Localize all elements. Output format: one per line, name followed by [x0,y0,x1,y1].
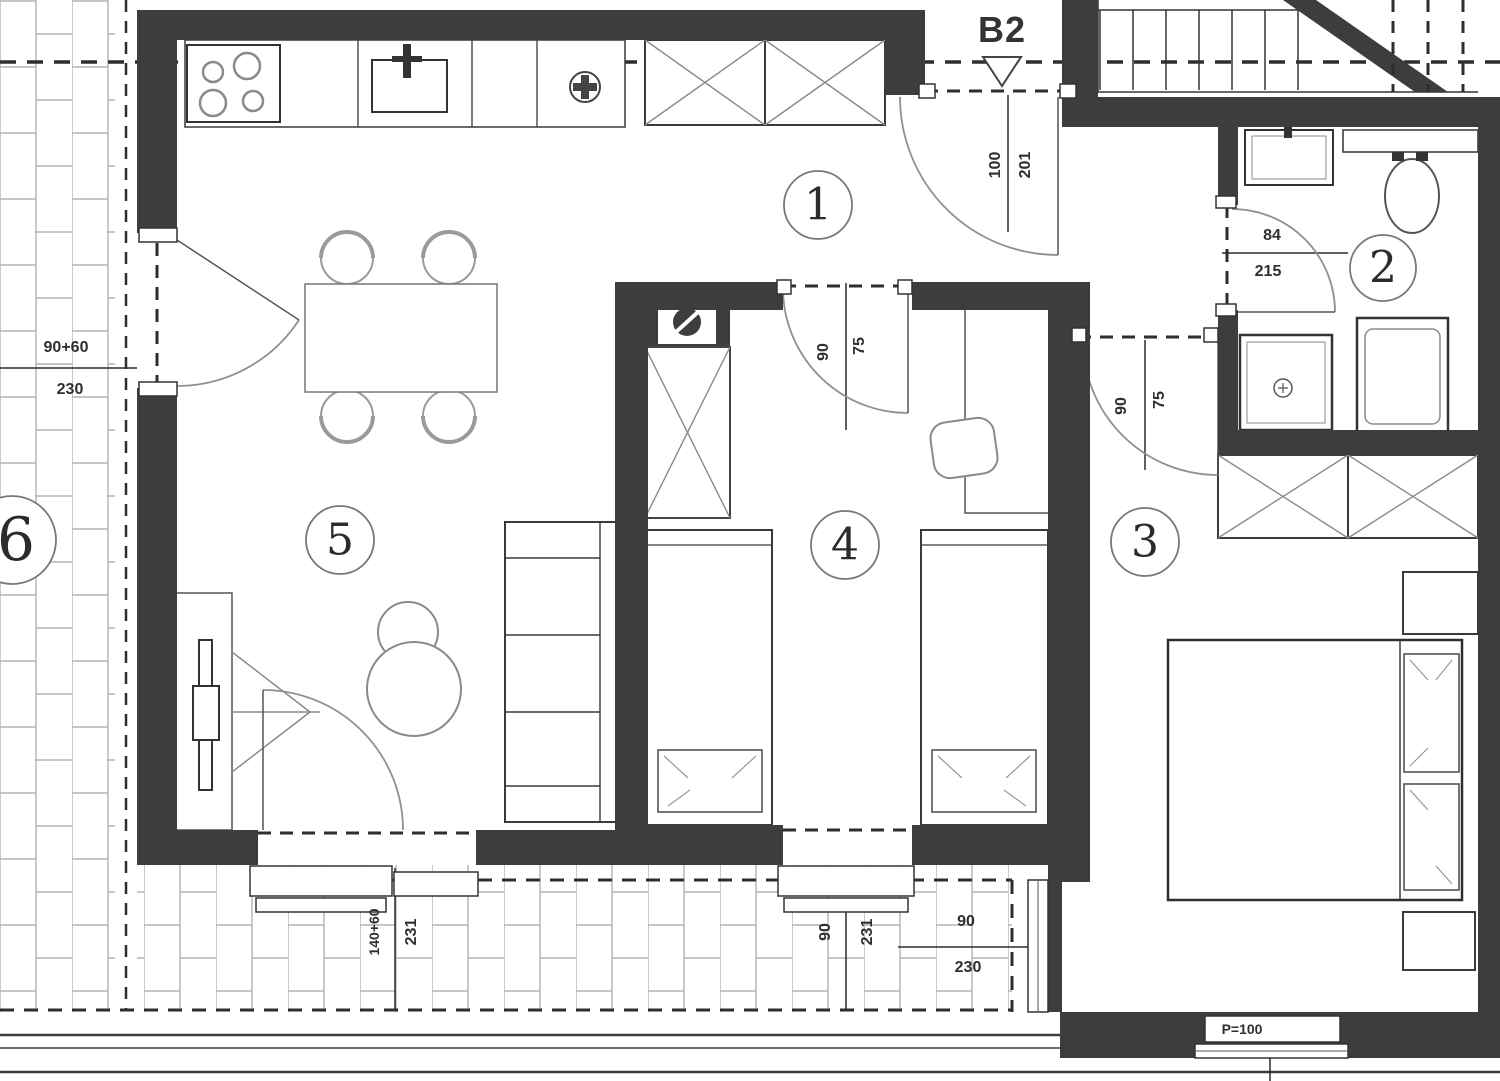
dim-bedroom4-door-width: 90 [815,343,833,361]
nightstand-bottom [1403,912,1475,970]
pillow [1404,654,1459,772]
room-number-1: 1 [804,180,832,231]
parapet-label: P=100 [1222,1021,1263,1037]
dim-bedroom4-door-height: 75 [851,337,869,355]
dim-side-window-height: 230 [57,381,84,399]
room-number-3: 3 [1131,517,1159,568]
kitchen-counter [185,40,625,127]
pillow [1404,784,1459,890]
living-side-door-arc [177,320,299,386]
bedroom3-wardrobe [1218,455,1478,538]
desk-chair [928,416,999,480]
staircase [1098,0,1478,92]
bedroom4-bed-left [645,530,772,825]
dining-set [305,232,497,442]
dim-entrance-width: 100 [987,152,1005,179]
armchair [367,602,461,736]
stair-direction-bar [1283,0,1448,92]
room-number-5: 5 [326,515,354,566]
dim-side-window-width: 90+60 [44,339,89,357]
dining-table [305,284,497,392]
bedroom4-bed-right [921,530,1048,825]
bathroom-sink [1245,122,1333,185]
dim-bedroom3-door-width: 90 [1113,397,1131,415]
dim-balcony-door-height: 231 [403,919,421,946]
hall-wardrobe [645,40,885,125]
washing-machine [1357,318,1448,432]
sofa [505,522,628,822]
dim-bedroom3-door-height: 75 [1151,391,1169,409]
floorplan-page: B2 1 2 3 4 5 6 100 201 90 75 90 75 84 21… [0,0,1500,1081]
room-number-4: 4 [831,520,859,571]
nightstand-top [1403,572,1478,634]
dim-bedroom4-window-height: 231 [859,919,877,946]
window-sill [250,866,392,896]
floorplan-drawing [0,0,1500,1081]
room-number-2: 2 [1369,243,1397,294]
entrance-marker-icon [983,57,1021,86]
bedroom3-bed [1168,640,1462,900]
boiler-icon [570,72,600,102]
bedroom4-wardrobe [645,347,730,518]
dim-balcony-door-width: 140+60 [366,908,382,955]
bedroom4-desk [928,300,1048,513]
shower [1240,335,1332,430]
dim-bathroom-door-height: 215 [1255,263,1282,281]
toilet [1385,152,1439,233]
dim-bedroom4-window-width: 90 [817,923,835,941]
dim-bathroom-door-width: 84 [1263,227,1281,245]
room-number-6: 6 [0,505,35,575]
bathroom-door-arc [1232,209,1335,312]
unit-label: B2 [978,9,1026,51]
tv-unit [175,593,320,830]
dim-bedroom3-window-height: 230 [955,959,982,977]
pillow [658,750,762,812]
window-sill [778,866,914,896]
dim-entrance-height: 201 [1017,152,1035,179]
dim-bedroom3-window-width: 90 [957,913,975,931]
bathroom-shelf [1343,130,1478,152]
pillow [932,750,1036,812]
